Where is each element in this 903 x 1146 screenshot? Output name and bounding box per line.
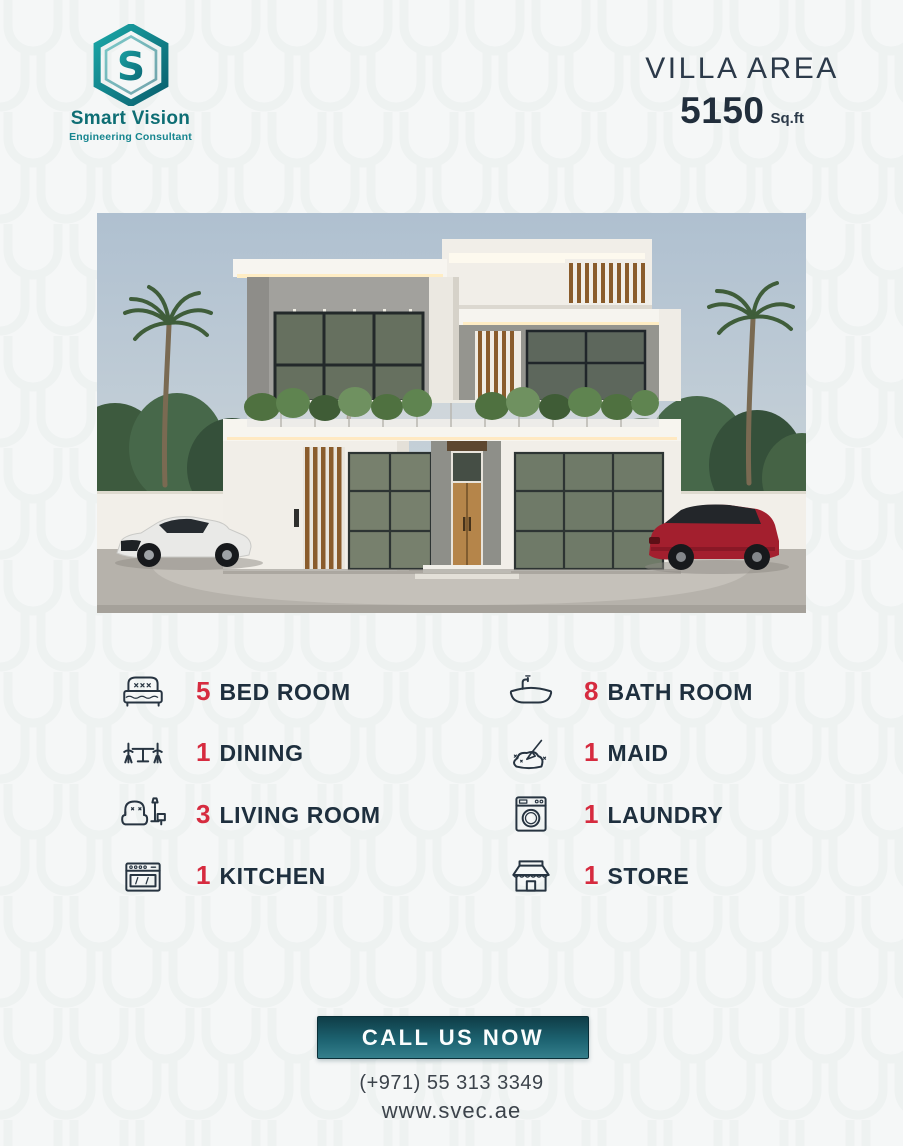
- cleaning-icon: [500, 728, 562, 778]
- feature-count: 8: [584, 676, 598, 706]
- bed-icon: [112, 666, 174, 716]
- hexagon-s-logo-icon: S: [85, 24, 177, 106]
- sofa-lamp-icon: [112, 789, 174, 839]
- villa-building: [223, 239, 681, 579]
- feature-count: 1: [196, 860, 210, 890]
- feature-bedrooms: 5BED ROOM: [112, 666, 442, 716]
- villa-area-title: VILLA AREA: [620, 52, 864, 86]
- feature-maid: 1MAID: [500, 728, 800, 778]
- flyer-page: S Smart Vision Engineering Consultant VI…: [0, 0, 903, 1146]
- feature-label: LIVING ROOM: [219, 802, 380, 828]
- feature-count: 3: [196, 799, 210, 829]
- website-url: www.svec.ae: [0, 1098, 903, 1124]
- call-us-now-button[interactable]: CALL US NOW: [317, 1016, 589, 1059]
- villa-photo: [97, 213, 806, 613]
- feature-count: 1: [584, 799, 598, 829]
- feature-count: 1: [584, 860, 598, 890]
- villa-area-unit: Sq.ft: [770, 110, 803, 127]
- feature-living-room: 3LIVING ROOM: [112, 789, 442, 839]
- cta-label: CALL US NOW: [362, 1025, 544, 1051]
- feature-label: LAUNDRY: [607, 802, 723, 828]
- feature-count: 1: [584, 737, 598, 767]
- feature-label: KITCHEN: [219, 863, 325, 889]
- feature-store: 1STORE: [500, 851, 800, 901]
- feature-count: 5: [196, 676, 210, 706]
- feature-label: BATH ROOM: [607, 679, 753, 705]
- bathtub-icon: [500, 666, 562, 716]
- brand-name: Smart Vision: [48, 108, 213, 130]
- brand-block: S Smart Vision Engineering Consultant: [48, 24, 213, 143]
- washing-machine-icon: [500, 789, 562, 839]
- svg-text:S: S: [116, 45, 144, 90]
- brand-tagline: Engineering Consultant: [48, 131, 213, 143]
- storefront-icon: [500, 851, 562, 901]
- stove-icon: [112, 851, 174, 901]
- feature-laundry: 1LAUNDRY: [500, 789, 800, 839]
- feature-label: BED ROOM: [219, 679, 350, 705]
- villa-area-block: VILLA AREA 5150Sq.ft: [620, 52, 864, 132]
- feature-bathrooms: 8BATH ROOM: [500, 666, 800, 716]
- phone-number: (+971) 55 313 3349: [0, 1072, 903, 1095]
- feature-count: 1: [196, 737, 210, 767]
- feature-kitchen: 1KITCHEN: [112, 851, 442, 901]
- feature-label: MAID: [607, 740, 668, 766]
- feature-label: STORE: [607, 863, 689, 889]
- dining-table-icon: [112, 728, 174, 778]
- feature-dining: 1DINING: [112, 728, 442, 778]
- villa-area-value: 5150: [680, 90, 764, 131]
- feature-label: DINING: [219, 740, 303, 766]
